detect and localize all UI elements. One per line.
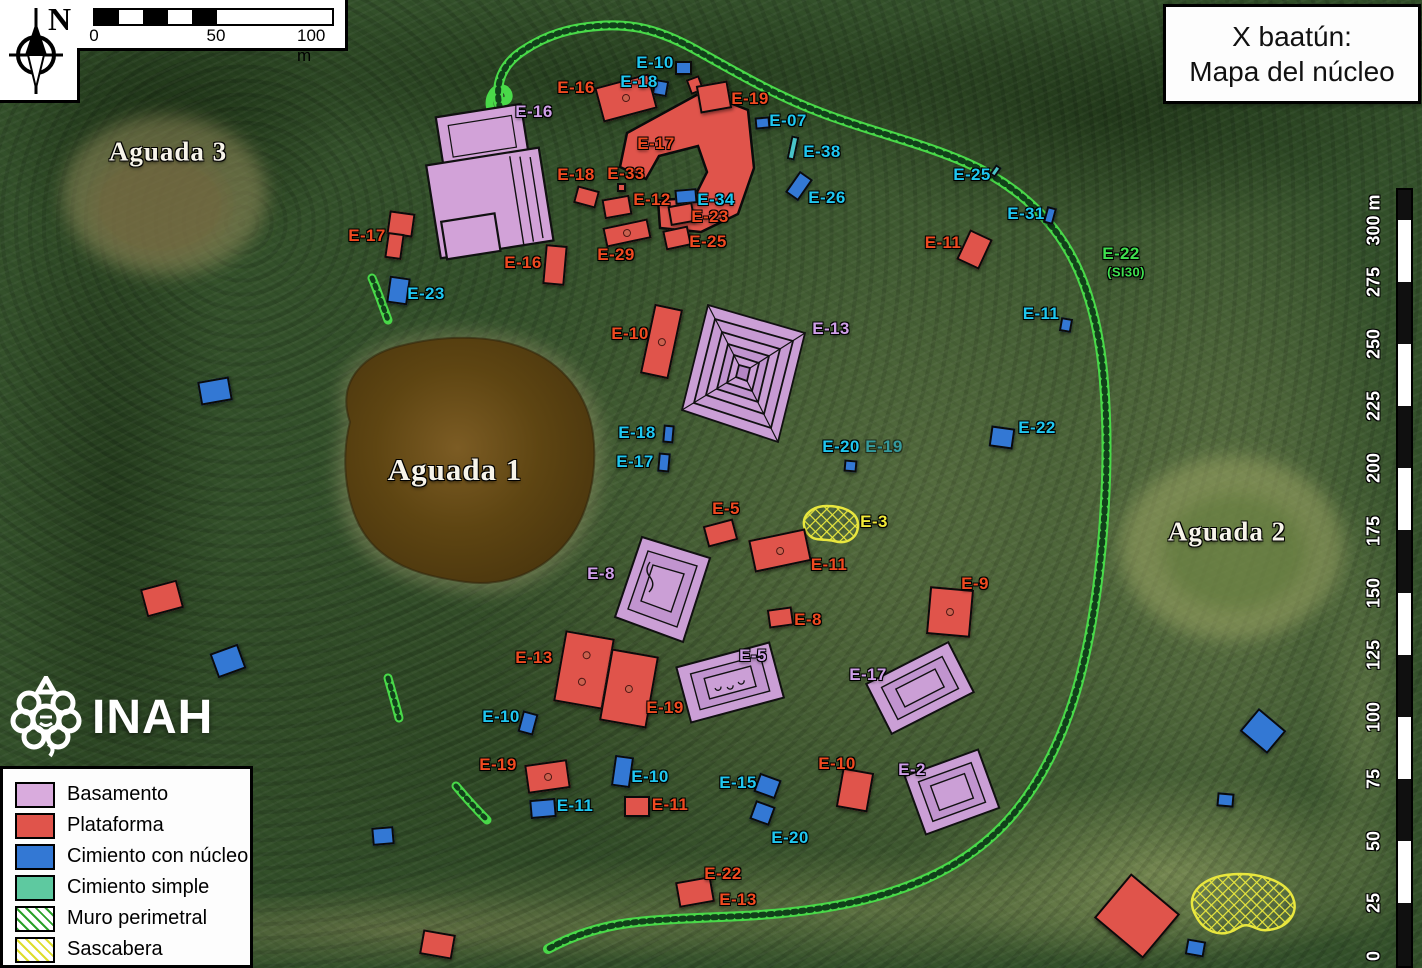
structure-label: E-10 xyxy=(818,754,856,774)
place-label: Aguada 3 xyxy=(109,137,227,168)
structure-label: E-18 xyxy=(557,165,595,185)
inah-flower-icon xyxy=(10,676,82,758)
legend-swatch-basamento xyxy=(15,782,55,808)
ruler-segment xyxy=(1398,655,1411,717)
legend-label: Cimiento con núcleo xyxy=(67,845,248,868)
ruler-segment xyxy=(1398,344,1411,406)
structure-label: E-23 xyxy=(691,207,729,227)
structure-label: E-17 xyxy=(616,452,654,472)
structure-label: E-20 xyxy=(822,437,860,457)
structure-label: E-23 xyxy=(407,284,445,304)
legend-swatch-nucleo xyxy=(15,844,55,870)
legend-swatch-hatch-yellow xyxy=(15,937,55,963)
compass-box: N xyxy=(0,0,80,103)
structure-label: E-2 xyxy=(898,760,926,780)
structure-label: E-07 xyxy=(769,111,807,131)
inah-logo: INAH xyxy=(10,676,213,758)
north-arrow-icon: N xyxy=(0,0,77,100)
legend-item: Cimiento simple xyxy=(15,872,250,903)
legend-item: Cimiento con núcleo xyxy=(15,841,250,872)
structure-label: E-11 xyxy=(1023,304,1060,324)
ruler-segment xyxy=(1398,406,1411,468)
structure-label: E-13 xyxy=(719,890,757,910)
structure-label: E-10 xyxy=(636,53,674,73)
structure-label: E-5 xyxy=(712,499,740,519)
ruler-segment xyxy=(1398,593,1411,655)
ruler-segment xyxy=(1398,903,1411,965)
structure-label: E-19 xyxy=(646,698,684,718)
legend-label: Plataforma xyxy=(67,814,164,837)
structure-label: E-22 xyxy=(704,864,742,884)
structure-label: E-11 xyxy=(925,233,962,253)
scale-bar: 0 50 100 m xyxy=(77,0,348,51)
legend-label: Sascabera xyxy=(67,938,163,961)
structure-label: E-33 xyxy=(607,164,645,184)
legend-swatch-hatch-green xyxy=(15,906,55,932)
structure-label: E-3 xyxy=(860,512,888,532)
structure-label: E-5 xyxy=(739,646,767,666)
legend-label: Muro perimetral xyxy=(67,907,207,930)
structure-label: E-25 xyxy=(689,232,727,252)
legend-label: Basamento xyxy=(67,783,168,806)
structure-label: E-18 xyxy=(618,423,656,443)
structure-label: E-22 xyxy=(1102,244,1140,264)
legend: BasamentoPlataformaCimiento con núcleoCi… xyxy=(0,766,253,968)
structure-label: E-8 xyxy=(794,610,822,630)
structure-label: E-11 xyxy=(557,796,594,816)
ruler-segment xyxy=(1398,779,1411,841)
structure-label: E-25 xyxy=(953,165,991,185)
ruler-segment xyxy=(1398,531,1411,593)
structure-label: E-19 xyxy=(479,755,517,775)
map-title-box: X baatún: Mapa del núcleo xyxy=(1163,4,1421,104)
ruler-segment xyxy=(1398,841,1411,903)
legend-item: Sascabera xyxy=(15,934,250,965)
structure-label: E-10 xyxy=(482,707,520,727)
structure-label: E-16 xyxy=(504,253,542,273)
ruler-segment xyxy=(1398,717,1411,779)
legend-item: Basamento xyxy=(15,779,250,810)
structure-label: E-16 xyxy=(557,78,595,98)
structure-label: E-17 xyxy=(637,134,675,154)
structure-label: E-26 xyxy=(808,188,846,208)
structure-label: E-12 xyxy=(633,190,671,210)
legend-swatch-simple xyxy=(15,875,55,901)
structure-label: E-17 xyxy=(849,665,887,685)
inah-wordmark: INAH xyxy=(92,690,213,745)
structure-label: E-29 xyxy=(597,245,635,265)
structure-label: E-22 xyxy=(1018,418,1056,438)
structure-label: E-10 xyxy=(631,767,669,787)
structure-label: E-20 xyxy=(771,828,809,848)
structure-label: E-19 xyxy=(865,437,903,457)
structure-label: E-10 xyxy=(611,324,649,344)
structure-label: E-16 xyxy=(515,102,553,122)
scale-tick-50: 50 xyxy=(207,26,226,46)
ruler-segment xyxy=(1398,468,1411,530)
legend-swatch-plataforma xyxy=(15,813,55,839)
ruler-segment xyxy=(1398,282,1411,344)
right-ruler-bar xyxy=(1396,188,1413,968)
scale-tick-0: 0 xyxy=(89,26,98,46)
structure-label: E-13 xyxy=(812,319,850,339)
structure-label: E-9 xyxy=(961,574,989,594)
place-label: Aguada 2 xyxy=(1168,517,1286,548)
scale-bar-blocks xyxy=(93,8,334,26)
map-title-line2: Mapa del núcleo xyxy=(1189,54,1394,89)
structure-label: E-8 xyxy=(587,564,615,584)
ruler-segment xyxy=(1398,220,1411,282)
structure-label: E-11 xyxy=(652,795,689,815)
structure-label: E-18 xyxy=(620,72,658,92)
structure-label: E-19 xyxy=(731,89,769,109)
structure-label: E-11 xyxy=(811,555,848,575)
structure-label: E-17 xyxy=(348,226,386,246)
legend-label: Cimiento simple xyxy=(67,876,209,899)
site-map: E-10E-18E-16E-19E-16E-07E-17E-38E-25E-18… xyxy=(0,0,1422,968)
structure-label: E-15 xyxy=(719,773,757,793)
scale-tick-100: 100 m xyxy=(297,26,329,66)
structure-label: (SI30) xyxy=(1107,265,1145,280)
map-title-line1: X baatún: xyxy=(1232,19,1352,54)
structure-label: E-31 xyxy=(1007,204,1045,224)
place-label: Aguada 1 xyxy=(388,452,523,488)
structure-label: E-13 xyxy=(515,648,553,668)
north-label: N xyxy=(48,1,71,37)
structure-label: E-38 xyxy=(803,142,841,162)
legend-item: Muro perimetral xyxy=(15,903,250,934)
legend-item: Plataforma xyxy=(15,810,250,841)
